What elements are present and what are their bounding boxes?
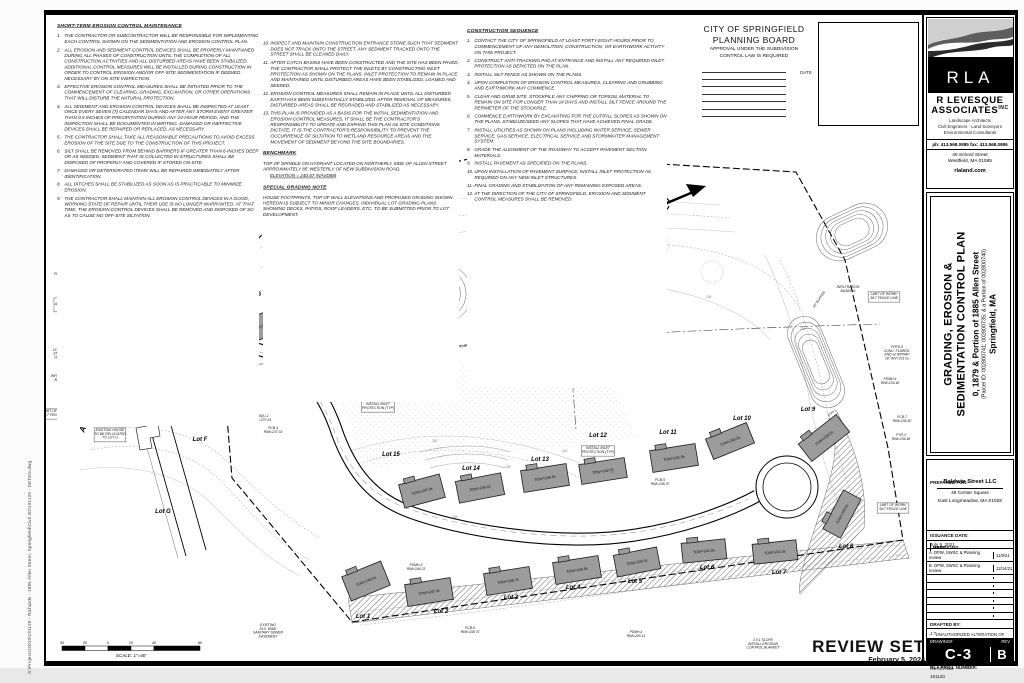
contour-elevation: 236 [705, 295, 712, 299]
plan-callout: 50' BUFFER [812, 290, 826, 308]
svg-text:RLA: RLA [946, 68, 994, 87]
lot-label: Lot 15 [382, 452, 400, 458]
house-footprint: TOW=247.0± [397, 470, 445, 508]
plan-callout: LIMIT OF WORK/SILT FENCE LINE [877, 503, 909, 513]
firm-services: Landscape ArchitectsCivil Engineers · La… [927, 118, 1013, 136]
note-item: 8.ALL DITCHES SHALL BE STABILIZED AS SOO… [57, 182, 259, 193]
notes-continued-column: 10.INSPECT AND MAINTAIN CONSTRUCTION ENT… [263, 40, 459, 402]
note-item: 6.SILT SHALL BE REMOVED FROM BEHIND BARR… [57, 148, 259, 165]
plan-callout: PSMH-4RIM=240.14 [627, 630, 646, 638]
firm-address: 40 School StreetWestfield, MA 01085 [927, 153, 1013, 166]
prepared-for-block: PREPARED FOR: Baldwin Street LLC 46 Cent… [927, 478, 1013, 530]
lot-label: Lot 13 [531, 457, 549, 463]
contour-elevation: 238 [504, 465, 511, 469]
house-footprint: TOW=241.5± [752, 535, 798, 564]
note-item: 1.CONTACT THE CITY OF SPRINGFIELD AT LEA… [467, 38, 667, 55]
project-title-block: GRADING, EROSION &SEDIMENTATION CONTROL … [926, 192, 1014, 456]
svg-text:INSTALL INLETPROTECTION (TYP): INSTALL INLETPROTECTION (TYP) [582, 446, 614, 454]
benchmark-elevation: ELEVATION = 240.67 (NAVD88) [270, 173, 459, 179]
existing-house-footprint [136, 424, 160, 450]
review-set-stamp: REVIEW SET February 5, 2024 [760, 637, 925, 664]
project-address: 0, 1879 & Portion of 1885 Allen Street [972, 199, 981, 449]
lot-label: Lot 1 [356, 614, 371, 620]
svg-text:PSMH-4RIM=233.48: PSMH-4RIM=233.48 [881, 377, 900, 385]
lot-label: Lot 6 [700, 565, 715, 571]
note-item: 6.COMMENCE EARTHWORK BY EXCAVATING FOR T… [467, 113, 667, 124]
plan-callout: PCB-4RIM=237.33 [264, 426, 283, 434]
revision-row-empty [927, 604, 1013, 612]
revision-empty-rows [927, 574, 1013, 619]
contour-elevation: 234 [799, 327, 806, 331]
plan-callout: PCB-7RIM=236.50 [893, 415, 912, 423]
plan-callout: PSMH-4RIM=233.48 [881, 377, 900, 385]
plan-callout: PCB-5RIM=238.70 [651, 478, 670, 486]
prepared-for-label: PREPARED FOR: [930, 480, 968, 485]
approval-note-line2: CONTROL LAW IS REQUIRED [720, 54, 789, 59]
firm-phone: ph: 413.568.0985 fax: 413.568.0986 [927, 139, 1013, 150]
note-item: 12.EROSION CONTROL MEASURES SHALL REMAIN… [263, 91, 459, 108]
signature-line [694, 111, 814, 118]
firm-name: R LEVESQUE ASSOCIATESINC [927, 96, 1013, 116]
scale-caption: SCALE: 1"=40' [116, 653, 147, 658]
signature-line [694, 103, 814, 110]
notes-list: 1.THE CONTRACTOR OR SUBCONTRACTOR WILL B… [57, 33, 259, 218]
special-grading-body: HOUSE FOOTPRINTS, TOP OF WALL ELEVATIONS… [263, 194, 459, 217]
svg-text:PFES-5CONC. FLARED-END w/ RIPR: PFES-5CONC. FLARED-END w/ RIPRAP18" INV=… [884, 345, 911, 360]
svg-text:20: 20 [129, 641, 133, 645]
plan-sheet-page: S:\Projects\2019\191120 - Richards - 188… [0, 0, 1024, 683]
note-item: 10.UPON INSTALLATION OF PAVEMENT SURFACE… [467, 169, 667, 180]
lot-label: Lot 10 [733, 416, 751, 422]
plan-callout: PYD-3RIM=236.48 [892, 433, 911, 441]
svg-text:PCB-5RIM=238.70: PCB-5RIM=238.70 [651, 478, 670, 486]
lot-label: Lot 7 [772, 570, 787, 576]
plan-callout: EXISTING HOUSETO BE RELOCATEDTO LOT G [94, 428, 126, 442]
note-item: 5.CLEAR AND GRUB SITE. STOCKPILE ANY CHI… [467, 93, 667, 110]
svg-text:PSMH-4RIM=240.14: PSMH-4RIM=240.14 [627, 630, 646, 638]
plan-callout: PSMH-3RIM=244.23 [407, 563, 426, 571]
approval-stamp-box [818, 22, 919, 126]
revision-row-empty [927, 597, 1013, 605]
svg-text:80: 80 [198, 641, 202, 645]
svg-text:40: 40 [60, 641, 64, 645]
notes-title: SHORT-TERM EROSION CONTROL MAINTENANCE [57, 23, 259, 29]
rev-label: REV [1001, 639, 1010, 644]
note-item: 5.THE CONTRACTOR SHALL TAKE ALL REASONAB… [57, 134, 259, 145]
note-item: 1.THE CONTRACTOR OR SUBCONTRACTOR WILL B… [57, 33, 259, 44]
notes-continued-list: 10.INSPECT AND MAINTAIN CONSTRUCTION ENT… [263, 40, 459, 144]
svg-text:50' BUFFER: 50' BUFFER [812, 290, 826, 308]
svg-text:INSTALL INLETPROTECTION (TYP): INSTALL INLETPROTECTION (TYP) [362, 402, 394, 410]
graphic-scale-bar: 40200204080SCALE: 1"=40' [60, 641, 202, 658]
note-item: 11.AFTER CATCH BASINS HAVE BEEN CONSTRUC… [263, 60, 459, 89]
revisions-header: REVISIONS: DATE: [927, 540, 1013, 548]
svg-text:LIMIT OF WORK/SILT FENCE LINE: LIMIT OF WORK/SILT FENCE LINE [870, 292, 899, 300]
plan-callout: LIMIT OF WORK/SILT FENCE LINE [868, 292, 900, 302]
note-item: 9.INSTALL PAVEMENT AS SPECIFIED ON THE P… [467, 160, 667, 166]
svg-text:PCB-6RIM=238.73: PCB-6RIM=238.73 [461, 626, 480, 634]
lot-label: Lot 11 [659, 430, 677, 436]
svg-text:PCB-7RIM=236.50: PCB-7RIM=236.50 [893, 415, 912, 423]
firm-logo-block: RLA R LEVESQUE ASSOCIATESINC Landscape A… [926, 17, 1014, 189]
svg-text:PYD-3RIM=236.48: PYD-3RIM=236.48 [892, 433, 911, 441]
drawing-number: C-3 [927, 646, 990, 663]
revision-row-empty [927, 589, 1013, 597]
note-item: 2.ALL EROSION AND SEDIMENT CONTROL DEVIC… [57, 47, 259, 81]
svg-text:PCB-4RIM=237.33: PCB-4RIM=237.33 [264, 426, 283, 434]
note-item: 11.FINAL GRADING AND STABILIZATION OF AN… [467, 182, 667, 188]
drafted-by-row: DRAFTED BY: J.T. [927, 619, 1013, 628]
note-item: 7.INSTALL UTILITIES AS SHOWN ON PLANS IN… [467, 127, 667, 144]
svg-text:0: 0 [107, 641, 109, 645]
basin-rings [782, 311, 849, 413]
plan-callout: EXISTING25.0' WIDESANITARY SEWEREASEMENT [253, 623, 283, 638]
contour-elevation: 244 [609, 470, 616, 474]
note-item: 13.THIS PLAN IS PROVIDED AS A BASIS FOR … [263, 110, 459, 144]
lot-label: Lot G [155, 509, 171, 515]
short-term-erosion-notes: SHORT-TERM EROSION CONTROL MAINTENANCE 1… [57, 23, 259, 426]
special-grading-title: SPECIAL GRADING NOTE [263, 184, 459, 190]
construction-sequence-title: CONSTRUCTION SEQUENCE [467, 28, 667, 34]
note-item: 12.AT THE DIRECTION OF THE CITY OF SPRIN… [467, 191, 667, 202]
house-footprint: TOW=246.0± [454, 468, 504, 503]
house-footprint: TOW=240.5± [704, 418, 755, 459]
drawing-label: DRAWING# [930, 639, 952, 644]
revision-row-empty [927, 612, 1013, 620]
lot-label: Lot 12 [589, 433, 607, 439]
firm-website: rlaland.com [927, 168, 1013, 174]
revision-row-empty [927, 582, 1013, 590]
note-item: 9.THE CONTRACTOR SHALL MAINTAIN ALL EROS… [57, 195, 259, 218]
svg-text:PSMH-3RIM=244.23: PSMH-3RIM=244.23 [407, 563, 426, 571]
note-item: 3.INSTALL SILT FENCE AS SHOWN ON THE PLA… [467, 71, 667, 77]
approval-note-line1: APPROVAL UNDER THE SUBDIVISION [710, 47, 799, 52]
signature-line [694, 88, 814, 95]
plan-callout: INSTALL INLETPROTECTION (TYP) [361, 402, 395, 412]
client-address2: East Longmeadow, MA 01028 [938, 499, 1002, 504]
svg-text:LIMIT OF WORK/SILT FENCE LINE: LIMIT OF WORK/SILT FENCE LINE [879, 503, 908, 511]
basin-rings [809, 196, 896, 269]
construction-sequence-list: 1.CONTACT THE CITY OF SPRINGFIELD AT LEA… [467, 38, 667, 202]
revision-letter: B [990, 647, 1013, 662]
benchmark-title: BENCHMARK [263, 150, 459, 156]
lot-label: Lot 3 [504, 595, 519, 601]
file-path-edge-note: S:\Projects\2019\191120 - Richards - 188… [27, 374, 32, 674]
note-item: 8.GRADE THE ALIGNMENT OF THE ROADWAY TO … [467, 147, 667, 158]
house-footprint: TOW=244.5± [520, 459, 570, 492]
signature-line [694, 81, 814, 88]
plan-callout: INFILTRATIONBASIN #2 [837, 285, 860, 293]
plan-callout: INSTALL INLETPROTECTION (TYP) [581, 446, 615, 456]
note-item: 3.EFFECTIVE EROSION CONTROL MEASURES SHA… [57, 84, 259, 101]
planning-board-line1: CITY OF SPRINGFIELD [703, 24, 804, 34]
issuance-date-row: ISSUANCE DATE: July 9, 2021 [927, 530, 1013, 540]
lot-label: Lot 4 [566, 585, 581, 591]
house-footprint: TOW=241.5± [681, 534, 727, 563]
project-city: Springfield, MA [989, 199, 998, 449]
review-set-label: REVIEW SET [760, 637, 925, 657]
note-item: 7.DAMAGED OR DETERIORATED ITEMS WILL BE … [57, 168, 259, 179]
lot-label: Lot F [193, 437, 208, 443]
plan-callout: PCB-6RIM=238.73 [461, 626, 480, 634]
signature-line [694, 74, 814, 81]
house-footprint: TOW=242.5± [578, 453, 627, 484]
contour-elevation: 246 [451, 515, 458, 519]
house-footprint: TOW=241.5± [649, 439, 699, 472]
svg-text:20: 20 [83, 641, 87, 645]
revisions-rows: A. DPW, SWSC & Planning review11/9/21 B.… [927, 548, 1013, 574]
plan-callout: PFES-5CONC. FLARED-END w/ RIPRAP18" INV=… [884, 345, 911, 360]
lot-label: Lot 5 [628, 579, 643, 585]
cul-de-sac [756, 456, 818, 518]
lot-label: Lot 9 [801, 407, 816, 413]
planning-board-block: CITY OF SPRINGFIELD PLANNING BOARD APPRO… [694, 24, 814, 118]
revision-row: B. DPW, SWSC & Planning review12/14/21 [927, 561, 1013, 574]
svg-text:INFILTRATIONBASIN #2: INFILTRATIONBASIN #2 [837, 285, 860, 293]
page-margin-band [0, 668, 1024, 683]
lot-label: Lot 2 [434, 609, 449, 615]
note-item: 10.INSPECT AND MAINTAIN CONSTRUCTION ENT… [263, 40, 459, 57]
contour-elevation: 240 [431, 439, 438, 443]
note-item: 4.UPON COMPLETION OF EROSION CONTROL MEA… [467, 80, 667, 91]
lot-label: Lot 8 [839, 544, 854, 550]
lot-label: Lot 14 [462, 466, 480, 472]
rla-logo: RLA [928, 19, 1013, 93]
revision-row-empty [927, 574, 1013, 582]
contour-elevation: 242 [561, 449, 568, 453]
sheet-title: GRADING, EROSION &SEDIMENTATION CONTROL … [942, 199, 967, 449]
svg-text:EXISTING25.0' WIDESANITARY SEW: EXISTING25.0' WIDESANITARY SEWEREASEMENT [253, 623, 283, 638]
title-block-lower: PREPARED FOR: Baldwin Street LLC 46 Cent… [926, 459, 1014, 666]
planning-board-line2: PLANNING BOARD [713, 35, 795, 45]
note-item: 2.CONSTRUCT ANTI-TRACKING PAD AT ENTRANC… [467, 58, 667, 69]
svg-text:40: 40 [152, 641, 156, 645]
parcel-id: (Parcel ID: 002800741; 002800735; & a Po… [982, 199, 988, 449]
drawing-number-block: DRAWING# REV C-3 B [927, 638, 1013, 665]
signature-line: DATE [694, 66, 814, 73]
benchmark-body: TOP OF SPINDLE ON HYDRANT LOCATED ON NOR… [263, 160, 459, 171]
note-item: 4.ALL SEDIMENT AND EROSION CONTROL DEVIC… [57, 103, 259, 132]
client-address1: 46 Center Square [951, 491, 989, 496]
signature-line [694, 96, 814, 103]
construction-sequence-notes: CONSTRUCTION SEQUENCE 1.CONTACT THE CITY… [467, 28, 667, 388]
